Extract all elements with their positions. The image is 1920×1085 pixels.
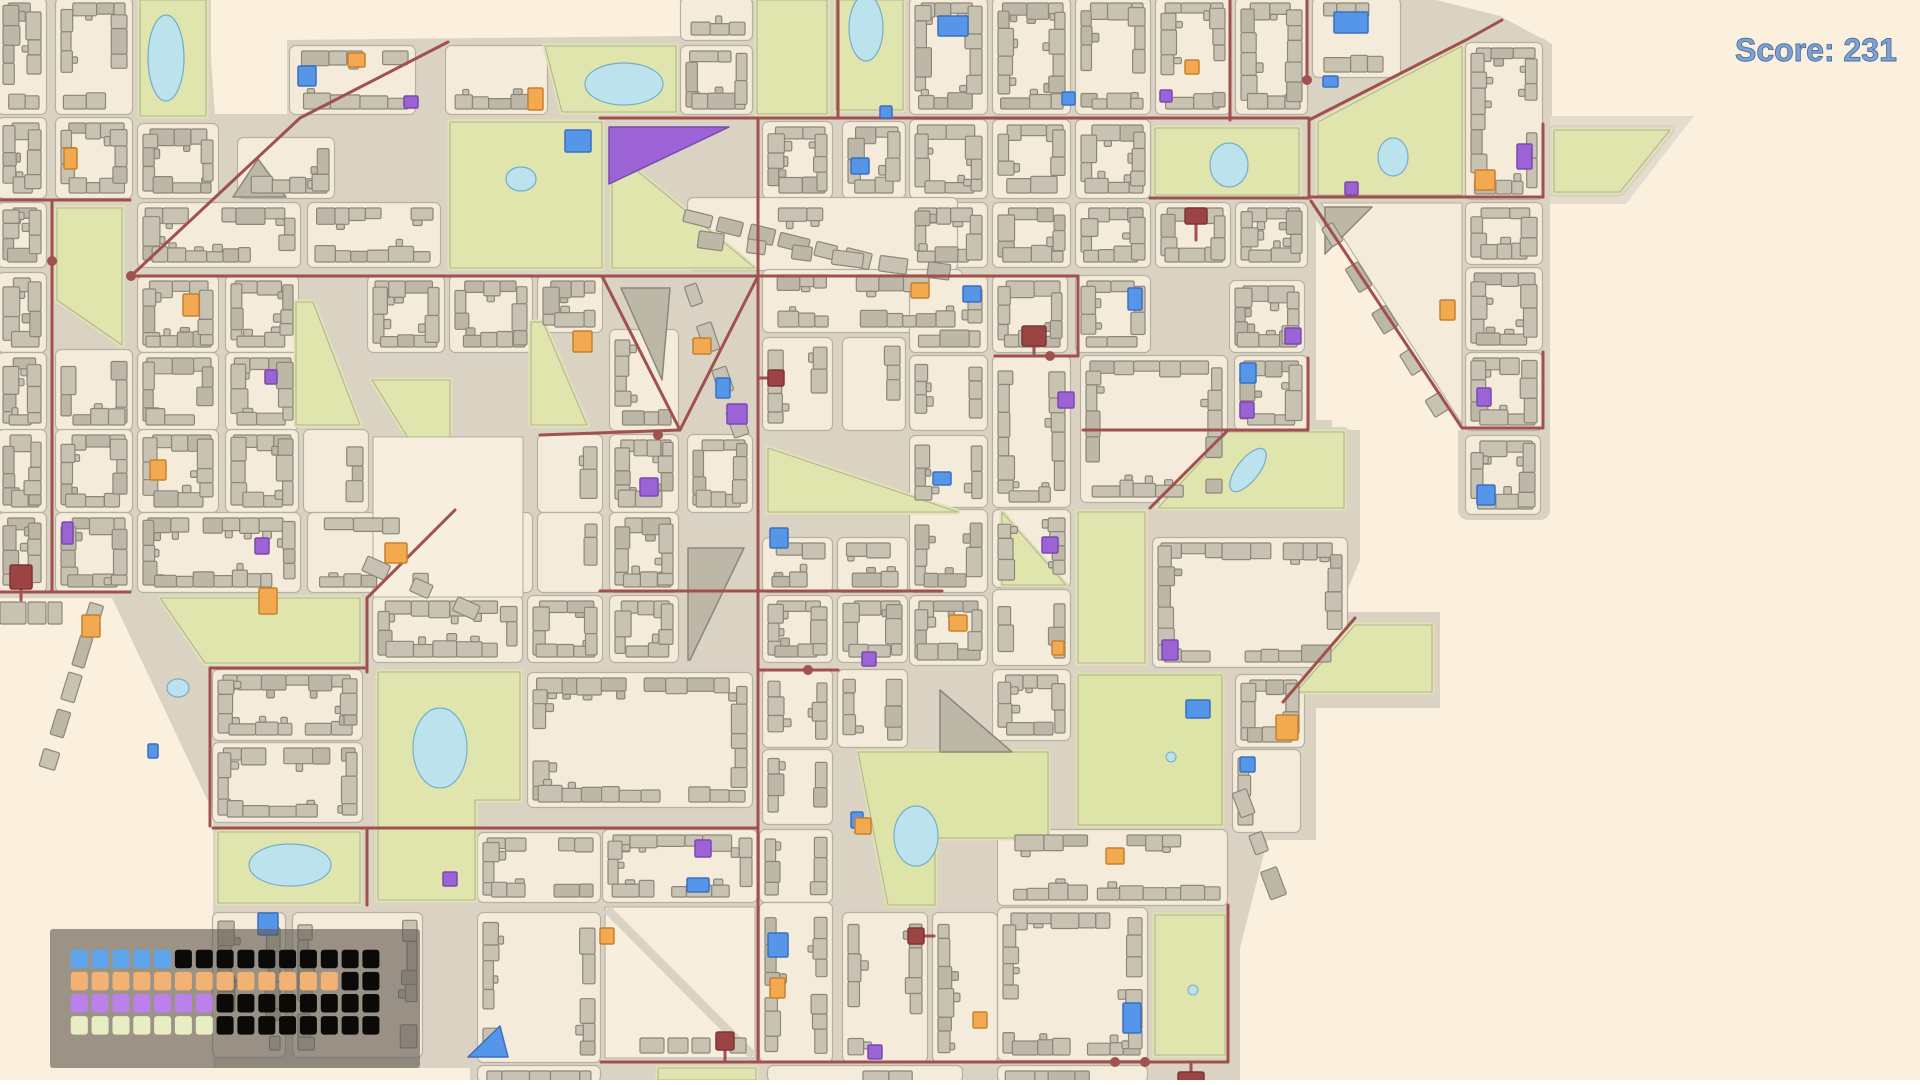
svg-text:Score: 231: Score: 231 <box>1735 32 1897 68</box>
